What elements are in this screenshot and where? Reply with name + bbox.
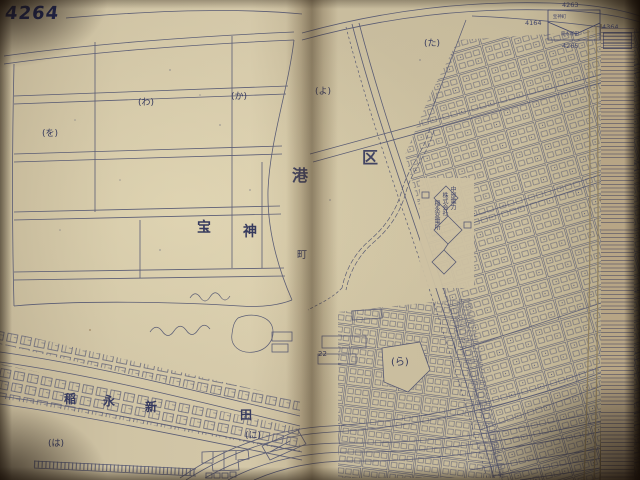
town-char-1: 宝: [197, 221, 211, 235]
village-char-1: 稲: [64, 393, 76, 405]
adjacent-page-header-box: [603, 32, 632, 49]
index-name-bottom: 稲永新田: [561, 30, 579, 36]
substation-label-3: 稲永変電所: [433, 200, 439, 230]
index-sheet-top: 4263: [562, 1, 579, 9]
district-char-minato: 港: [292, 168, 308, 184]
kana-block-wo: (を): [42, 130, 58, 139]
kana-block-ha: (は): [48, 440, 64, 449]
town-char-3: 町: [297, 251, 307, 261]
index-sheet-left: 4164: [525, 19, 542, 27]
lot-number: 22: [318, 351, 327, 358]
town-char-2: 神: [243, 225, 257, 239]
adjacent-page-text-column: [601, 28, 634, 480]
index-name-top: 宝神町: [553, 13, 567, 19]
kana-block-ta: (た): [424, 40, 440, 49]
kana-block-ka: (か): [231, 93, 247, 102]
kana-block-ra: (ら): [391, 358, 409, 368]
substation-label-2: 株式会社: [441, 192, 447, 216]
village-char-2: 永: [103, 395, 115, 407]
index-sheet-bottom: 4265: [562, 42, 579, 50]
kana-block-wa: (わ): [138, 99, 154, 108]
kana-block-yo: (よ): [315, 88, 331, 97]
district-char-ku: 区: [362, 150, 378, 166]
village-char-3: 新: [145, 401, 157, 413]
map-linework: [0, 0, 640, 480]
sheet-number: 4264: [4, 5, 60, 23]
village-char-4: 田: [240, 409, 252, 421]
atlas-photo: 4264 港 区 宝 神 町 (を) (わ) (か) 稲 永 新 田 (は) (…: [0, 0, 640, 480]
urban-blocks: [338, 28, 640, 480]
left-street-grid: [4, 32, 294, 307]
substation-label-1: 中部電力: [449, 186, 455, 210]
kana-block-ni: (に): [245, 432, 261, 441]
